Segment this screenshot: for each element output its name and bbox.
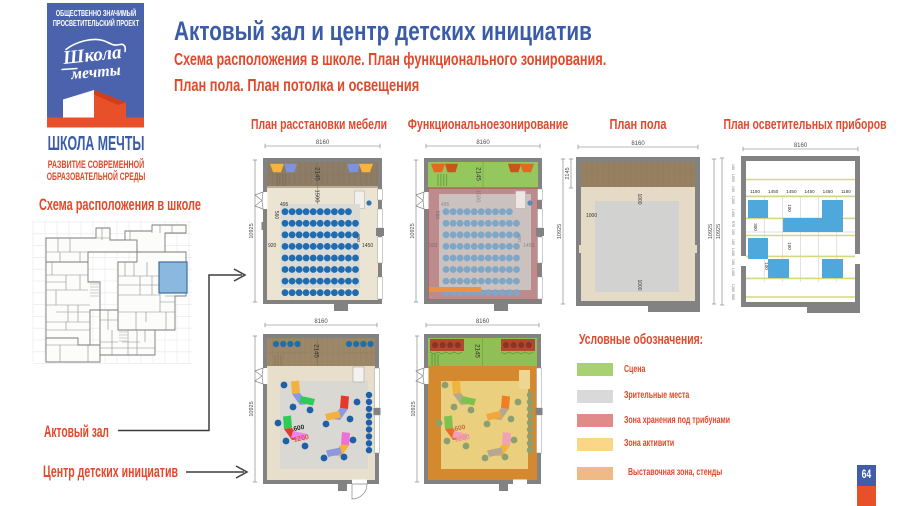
svg-text:1500: 1500 [314,190,320,203]
svg-text:2145: 2145 [314,167,321,181]
svg-text:100: 100 [787,242,792,250]
svg-text:900: 900 [731,294,735,300]
svg-text:10925: 10925 [249,401,255,416]
svg-text:1450: 1450 [823,189,834,194]
svg-text:100: 100 [764,262,769,270]
svg-text:1450: 1450 [523,243,534,249]
svg-text:100: 100 [731,239,735,245]
svg-text:8160: 8160 [476,319,490,325]
svg-text:10925: 10925 [410,223,416,238]
svg-text:10925: 10925 [557,224,563,239]
svg-text:2145: 2145 [313,344,320,358]
svg-text:1000: 1000 [636,193,642,204]
svg-text:100: 100 [731,259,735,265]
svg-text:920: 920 [268,243,277,249]
svg-text:100: 100 [731,164,735,170]
svg-text:495: 495 [441,202,450,208]
svg-text:1500: 1500 [475,190,481,203]
svg-text:1000: 1000 [636,279,642,290]
svg-text:100: 100 [731,229,735,235]
svg-text:10925: 10925 [249,223,255,238]
svg-text:1450: 1450 [731,248,735,256]
svg-text:300: 300 [753,223,758,231]
svg-text:10925: 10925 [708,224,714,239]
svg-text:1000: 1000 [586,213,597,219]
svg-text:1450: 1450 [804,189,815,194]
svg-text:8160: 8160 [794,143,808,149]
svg-text:2145: 2145 [565,167,571,179]
svg-text:920: 920 [429,243,438,249]
svg-text:8160: 8160 [314,319,328,325]
svg-text:1200: 1200 [731,196,735,204]
svg-text:2145: 2145 [474,344,481,358]
svg-text:1450: 1450 [362,243,373,249]
svg-text:1450: 1450 [786,189,797,194]
svg-text:100: 100 [731,186,735,192]
svg-text:8160: 8160 [631,141,645,147]
svg-text:1450: 1450 [731,209,735,217]
svg-text:900: 900 [517,234,522,242]
svg-text:970: 970 [731,221,735,227]
svg-text:10925: 10925 [716,224,722,239]
svg-text:1400: 1400 [731,268,735,276]
svg-text:8160: 8160 [316,140,330,146]
svg-text:1180: 1180 [750,189,760,194]
svg-text:8160: 8160 [476,140,490,146]
svg-text:1180: 1180 [841,189,851,194]
svg-text:100: 100 [787,204,792,212]
svg-text:1450: 1450 [768,189,779,194]
svg-text:1500: 1500 [731,174,735,182]
svg-text:10925: 10925 [411,401,417,416]
svg-text:560: 560 [434,211,440,220]
svg-text:1260: 1260 [731,284,735,292]
svg-text:900: 900 [356,234,361,242]
svg-text:2145: 2145 [475,167,482,181]
